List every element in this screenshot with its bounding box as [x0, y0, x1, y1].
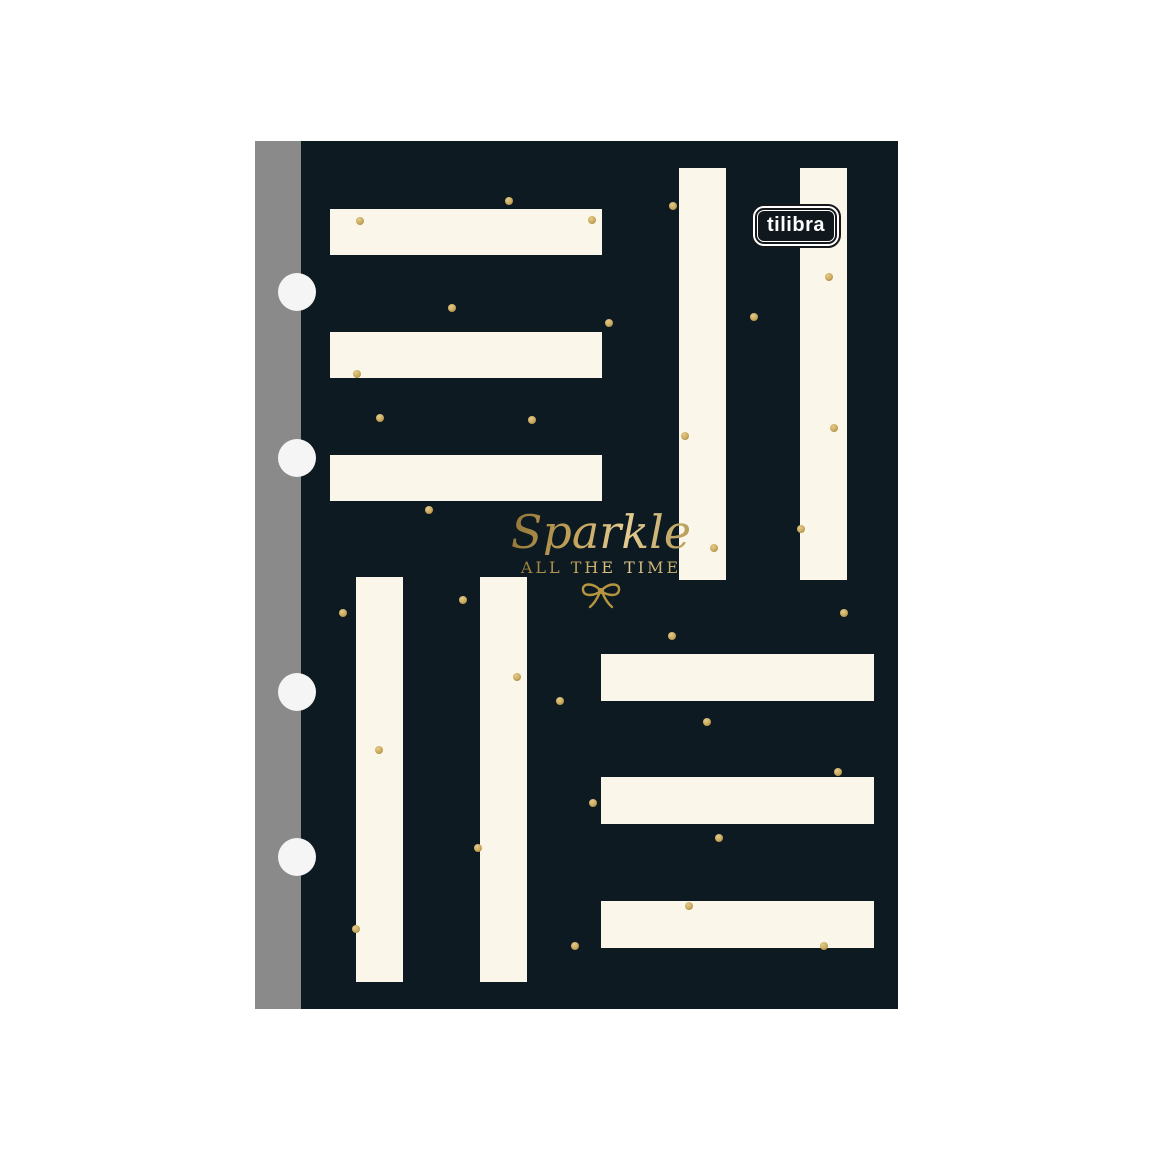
stripe — [330, 209, 602, 255]
stripe — [330, 332, 602, 378]
stripe — [601, 901, 874, 948]
sparkle-dot — [376, 414, 384, 422]
cover-title: Sparkle — [451, 509, 751, 555]
notebook-spine — [255, 141, 301, 1009]
cover-subtitle: ALL THE TIME — [451, 558, 751, 577]
sparkle-dot — [750, 313, 758, 321]
sparkle-dot — [685, 902, 693, 910]
sparkle-dot — [605, 319, 613, 327]
sparkle-dot — [588, 216, 596, 224]
sparkle-dot — [681, 432, 689, 440]
sparkle-dot — [703, 718, 711, 726]
stripe — [480, 577, 527, 982]
sparkle-dot — [830, 424, 838, 432]
stripe — [601, 654, 874, 701]
sparkle-dot — [505, 197, 513, 205]
sparkle-dot — [840, 609, 848, 617]
sparkle-dot — [448, 304, 456, 312]
binder-hole — [278, 673, 316, 711]
stripe — [330, 455, 602, 501]
sparkle-dot — [571, 942, 579, 950]
sparkle-dot — [352, 925, 360, 933]
sparkle-dot — [356, 217, 364, 225]
notebook: tilibra Sparkle ALL THE TIME — [255, 141, 898, 1009]
sparkle-dot — [820, 942, 828, 950]
sparkle-dot — [715, 834, 723, 842]
sparkle-dot — [834, 768, 842, 776]
brand-logo-text: tilibra — [767, 214, 825, 237]
binder-hole — [278, 439, 316, 477]
brand-logo-border: tilibra — [755, 208, 837, 244]
sparkle-dot — [668, 632, 676, 640]
stripe — [356, 577, 403, 982]
sparkle-dot — [474, 844, 482, 852]
sparkle-dot — [375, 746, 383, 754]
brand-logo: tilibra — [758, 211, 834, 241]
sparkle-dot — [513, 673, 521, 681]
sparkle-dot — [339, 609, 347, 617]
sparkle-dot — [797, 525, 805, 533]
binder-hole — [278, 273, 316, 311]
binder-hole — [278, 838, 316, 876]
stripe — [601, 777, 874, 824]
product-photo: tilibra Sparkle ALL THE TIME — [0, 0, 1160, 1160]
sparkle-dot — [825, 273, 833, 281]
sparkle-dot — [528, 416, 536, 424]
sparkle-dot — [669, 202, 677, 210]
sparkle-dot — [353, 370, 361, 378]
notebook-cover: tilibra Sparkle ALL THE TIME — [301, 141, 898, 1009]
sparkle-dot — [556, 697, 564, 705]
cover-title-block: Sparkle ALL THE TIME — [451, 509, 751, 618]
sparkle-dot — [589, 799, 597, 807]
bow-icon — [578, 581, 624, 613]
sparkle-dot — [425, 506, 433, 514]
brand-logo-badge: tilibra — [751, 204, 841, 248]
